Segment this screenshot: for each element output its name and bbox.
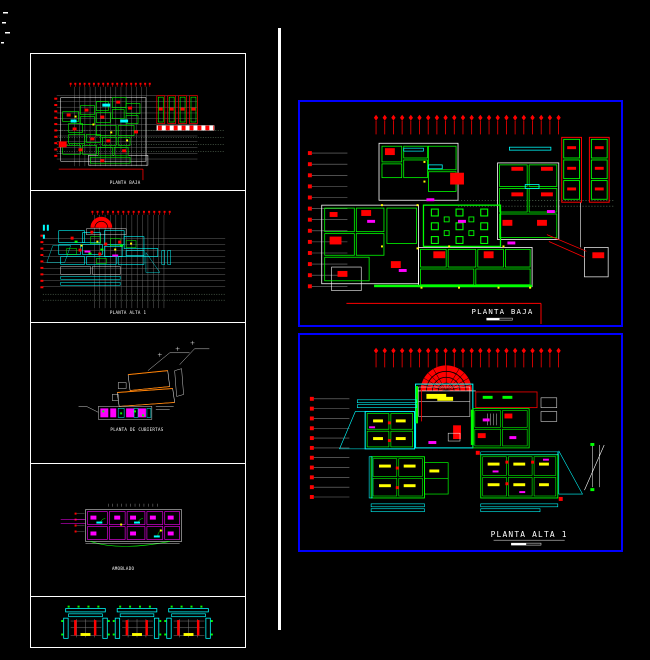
sheet-title: PLANTA BAJA (471, 307, 533, 316)
strip-plan (79, 406, 174, 419)
mini-panel-planta-baja[interactable]: PLANTA BAJA (31, 54, 245, 191)
scale-bar-fill (511, 543, 526, 545)
roof-slabs (112, 369, 183, 407)
sheet-title: PLANTA ALTA 1 (491, 530, 568, 539)
mini-panel-amoblado[interactable]: AMOBLADO (31, 464, 245, 597)
dimension-ticks-top (108, 504, 157, 507)
gridlines-horizontal-long (57, 130, 225, 151)
mini-amoblado-drawing: AMOBLADO (31, 464, 245, 596)
sheet-title-group: PLANTA BAJA (471, 307, 533, 320)
mini-planta-baja-drawing: PLANTA BAJA (31, 54, 245, 190)
section-drawings (61, 606, 213, 639)
courtyard (423, 205, 500, 246)
red-accents (330, 148, 605, 277)
mini-cubiertas-drawing: PLANTA DE CUBIERTAS (31, 323, 245, 463)
grid-markers-top (70, 83, 151, 87)
grid-markers-left (40, 235, 43, 289)
planta-baja-drawing: PLANTA BAJA (300, 102, 621, 325)
mini-panel-sections[interactable] (31, 597, 245, 647)
plan-mass (43, 225, 171, 286)
building-outline (322, 143, 608, 290)
grid-markers-left (308, 151, 348, 288)
sheet-title-group: PLANTA ALTA 1 (491, 530, 568, 545)
mini-panel-cubiertas[interactable]: PLANTA DE CUBIERTAS (31, 323, 245, 464)
furniture-plan (61, 510, 182, 547)
mini-sections-drawing (31, 597, 245, 647)
left-ticks (75, 513, 85, 533)
scale-bar-fill (487, 318, 500, 320)
grid-markers-top (91, 211, 170, 215)
plan-mass (59, 98, 148, 166)
central-block (416, 384, 473, 448)
arch-base (98, 225, 106, 228)
classroom-block-2 (589, 137, 609, 202)
grid-markers-top (374, 348, 561, 368)
grid-markers-top (374, 115, 561, 135)
sheet-planta-alta-1[interactable]: PLANTA ALTA 1 (298, 333, 623, 552)
planta-alta-drawing: PLANTA ALTA 1 (300, 335, 621, 550)
mini-planta-alta-drawing: PLANTA ALTA 1 (31, 191, 245, 322)
left-sheet-column[interactable]: PLANTA BAJA (30, 53, 246, 648)
panel-label: PLANTA BAJA (110, 180, 141, 185)
column-divider (278, 28, 281, 630)
classroom-block-1 (562, 137, 582, 202)
grid-markers-left (310, 397, 350, 499)
edge-marks (0, 0, 20, 60)
left-wing-upper (340, 400, 417, 449)
striped-bar (157, 125, 214, 130)
classroom-columns (157, 96, 198, 124)
panel-label: AMOBLADO (112, 566, 135, 571)
red-corridor (476, 392, 557, 421)
cad-canvas[interactable]: PLANTA BAJA (0, 0, 650, 660)
leader-lines (148, 341, 209, 371)
sheet-planta-baja[interactable]: PLANTA BAJA (298, 100, 623, 327)
panel-label: PLANTA DE CUBIERTAS (110, 427, 163, 432)
mid-rooms (471, 409, 529, 448)
panel-label: PLANTA ALTA 1 (110, 310, 147, 315)
right-wing (476, 443, 604, 512)
mini-panel-planta-alta[interactable]: PLANTA ALTA 1 (31, 191, 245, 323)
grid-markers-left (54, 98, 57, 157)
left-wing-lower (369, 457, 448, 512)
